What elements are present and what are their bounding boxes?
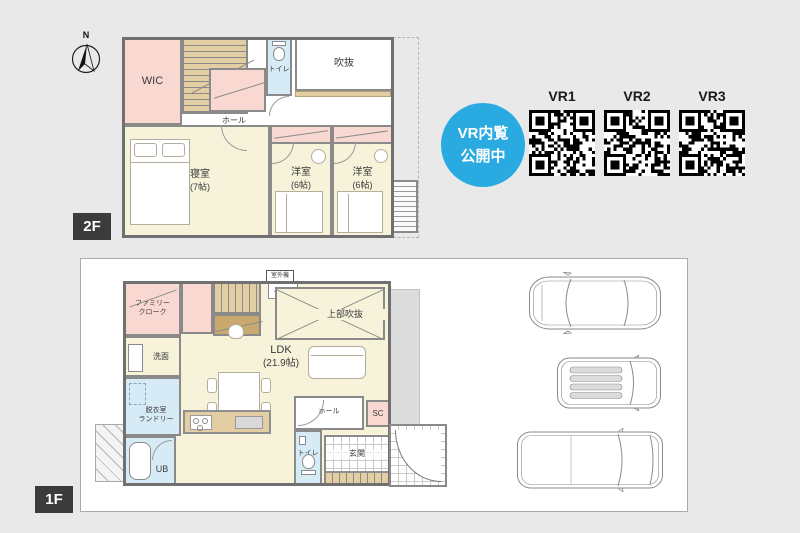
burner-icon: [202, 418, 208, 424]
toilet-tank-icon: [301, 470, 316, 475]
door-arc: [269, 96, 289, 116]
room-entrance-label: 玄関: [326, 449, 388, 459]
floor-plan-1f: ファミリー クローク A C 上部吹抜 洗面 脱衣室: [123, 281, 391, 486]
outdoor-unit-label: 室外機: [271, 273, 289, 281]
car-van-icon: [516, 428, 664, 492]
staircase-1f-upper: [213, 284, 261, 314]
sofa-line: [311, 355, 363, 356]
qr-block-vr3: VR3: [679, 88, 745, 176]
pillow-icon: [134, 143, 157, 157]
closet-diagonal-line: [129, 289, 176, 307]
room-toilet-2f-label: トイレ: [268, 66, 290, 75]
vanity-sink-icon: [128, 344, 143, 372]
room-void-2f-label: 吹抜: [334, 58, 354, 71]
vr-open-badge: VR内覧 公開中: [441, 103, 525, 187]
room-family-closet: ファミリー クローク: [126, 284, 181, 336]
bed-line: [286, 194, 287, 232]
room-void-2f: 吹抜: [295, 40, 391, 91]
entrance-door-arc: [395, 430, 441, 482]
room-bath-label: UB: [150, 464, 174, 475]
balcony-ladder: [391, 180, 418, 233]
car-kei-van-icon: [556, 355, 662, 411]
single-bed-icon: [275, 191, 323, 233]
compass-needle-icon: [68, 40, 104, 78]
single-bed-icon: [337, 191, 383, 233]
stool-icon: [228, 324, 244, 339]
qr-block-vr2: VR2: [604, 88, 670, 176]
room-entrance: 玄関: [324, 435, 388, 483]
kitchen-sink-icon: [235, 416, 263, 429]
room-washroom: 洗面: [126, 336, 181, 377]
door-arc: [298, 400, 324, 426]
chair-icon: [311, 149, 326, 164]
compass-north-label: N: [68, 30, 104, 40]
toilet-bowl-icon: [302, 454, 315, 469]
room-wic: WIC: [125, 40, 182, 125]
pillow-icon: [162, 143, 185, 157]
qr-block-vr1: VR1: [529, 88, 595, 176]
qr-label-vr2: VR2: [604, 88, 670, 104]
stove-icon: [190, 415, 212, 430]
bed-sheet-line: [131, 162, 189, 163]
floor-tag-1f: 1F: [35, 486, 73, 513]
room-washroom-label: 洗面: [142, 352, 180, 362]
entrance-step: [326, 471, 388, 483]
stair-side-closet: [181, 284, 213, 334]
side-eaves-shade: [390, 289, 420, 425]
qr-code-image-vr2: [604, 110, 670, 176]
room-wic-label: WIC: [142, 75, 163, 89]
floor-tag-2f: 2F: [73, 213, 111, 240]
kitchen-counter: [183, 410, 271, 434]
vr-badge-line1: VR内覧: [458, 122, 509, 145]
qr-label-vr3: VR3: [679, 88, 745, 104]
room-shoe-closet-label: SC: [372, 409, 383, 419]
burner-icon: [193, 418, 199, 424]
chair-icon: [261, 378, 271, 393]
qr-code-image-vr1: [529, 110, 595, 176]
closet-diagonal-line: [274, 130, 328, 139]
room-bedroom: 寝室 (7帖): [125, 125, 270, 235]
vr-badge-line2: 公開中: [460, 145, 505, 168]
toilet-tank-icon: [272, 41, 286, 46]
toilet-bowl-icon: [273, 47, 285, 61]
closet-diagonal-line: [336, 130, 388, 138]
room-shoe-closet: SC: [366, 400, 388, 427]
car-sedan-icon: [528, 272, 662, 334]
void-ledge: [295, 91, 391, 97]
room-upper-void: 上部吹抜: [275, 287, 385, 340]
double-bed-icon: [130, 139, 190, 225]
sofa-icon: [308, 346, 366, 379]
room-bath-ub: UB: [126, 436, 176, 483]
qr-code-image-vr3: [679, 110, 745, 176]
room-western-2-label: 洋室 (6帖): [334, 167, 391, 191]
hatched-terrace: [95, 424, 126, 482]
bed-line: [348, 194, 349, 232]
bathtub-icon: [129, 442, 151, 480]
room-western-1-label: 洋室 (6帖): [272, 167, 330, 191]
floor-plan-2f: WIC ホール トイレ 吹抜: [122, 37, 394, 238]
chair-icon: [207, 378, 217, 393]
entrance-porch: [389, 424, 447, 487]
room-laundry: 脱衣室 ランドリー: [126, 377, 181, 436]
closet-2f: [209, 68, 266, 112]
chair-icon: [374, 149, 388, 163]
closet-diagonal-line: [214, 82, 264, 98]
room-hall-1f: ホール: [294, 396, 364, 430]
floor-plan-sheet: N WIC ホール トイレ 吹抜: [0, 0, 800, 533]
door-arc: [152, 440, 172, 460]
washing-machine-icon: [129, 383, 146, 405]
burner-icon: [197, 425, 203, 431]
room-toilet-2f: トイレ: [266, 40, 292, 96]
qr-label-vr1: VR1: [529, 88, 595, 104]
room-laundry-label: 脱衣室 ランドリー: [134, 407, 178, 425]
compass-icon: N: [68, 30, 104, 78]
room-toilet-1f: トイレ: [294, 430, 322, 483]
toilet-sink-icon: [299, 436, 306, 445]
